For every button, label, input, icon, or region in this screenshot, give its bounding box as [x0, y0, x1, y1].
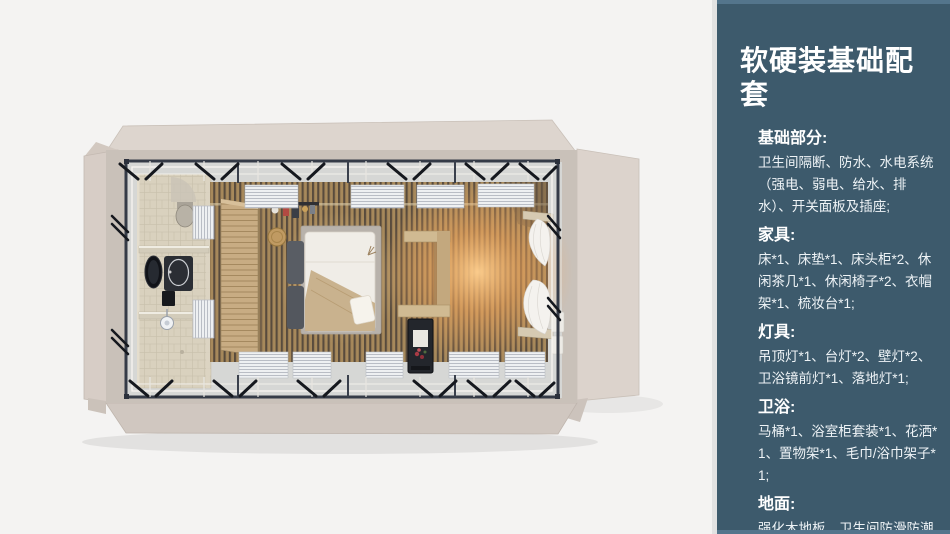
slide-canvas: 软硬装基础配套 基础部分: 卫生间隔断、防水、水电系统（强电、弱电、给水、排水）…	[0, 0, 950, 534]
bathroom-left-wall	[137, 174, 140, 388]
headboard-cushion-1	[287, 241, 304, 284]
floorplan-render	[0, 0, 715, 534]
slat-panel	[293, 352, 331, 378]
flower-3	[417, 348, 421, 352]
tea-table	[268, 228, 286, 246]
slat-panel	[245, 185, 298, 208]
slat-panels-bottom	[239, 352, 545, 378]
flower-2	[420, 355, 424, 359]
toilet	[176, 205, 194, 227]
slat-panel	[239, 352, 288, 378]
partition-1-highlight	[139, 246, 209, 248]
flap-right	[577, 149, 639, 401]
flower-leaf	[424, 351, 427, 354]
faucet	[169, 271, 172, 274]
shelf-unit	[408, 319, 433, 373]
floor-drain	[180, 350, 184, 354]
shelf-post	[437, 231, 450, 317]
door-stack-top	[193, 206, 214, 239]
section-heading: 灯具:	[758, 323, 940, 343]
section-body: 吊顶灯*1、台灯*2、壁灯*2、卫浴镜前灯*1、落地灯*1;	[758, 346, 940, 390]
flower-1	[415, 352, 419, 356]
divider-shadow	[258, 205, 262, 356]
section-heading: 家具:	[758, 226, 940, 246]
shelf-unit-base	[411, 366, 430, 370]
sidebar-top-edge	[717, 0, 950, 4]
section-heading: 基础部分:	[758, 129, 940, 149]
section-body: 马桶*1、浴室柜套装*1、花洒*1、置物架*1、毛巾/浴巾架子*1;	[758, 421, 940, 487]
slat-panel	[351, 185, 404, 208]
spec-section-flooring: 地面: 强化木地板、卫生间防滑防潮石塑板;	[758, 495, 940, 534]
flap-top	[106, 120, 576, 152]
flap-bottom	[106, 403, 577, 434]
shelf-bottom	[398, 305, 450, 317]
slat-panel	[505, 352, 545, 378]
slat-panel	[366, 352, 403, 378]
section-heading: 地面:	[758, 495, 940, 515]
vanity-mirror-glass	[148, 260, 159, 284]
headboard-cushion-2	[287, 286, 304, 329]
door-stack-bottom	[193, 300, 214, 338]
spec-section-lighting: 灯具: 吊顶灯*1、台灯*2、壁灯*2、卫浴镜前灯*1、落地灯*1;	[758, 323, 940, 390]
slat-panel	[417, 185, 464, 208]
spec-section-furniture: 家具: 床*1、床垫*1、床头柜*2、休闲茶几*1、休闲椅子*2、衣帽架*1、梳…	[758, 226, 940, 315]
spec-sections: 基础部分: 卫生间隔断、防水、水电系统（强电、弱电、给水、排水）、开关面板及插座…	[758, 129, 940, 534]
headboard-divider	[221, 199, 262, 356]
slat-panel	[478, 184, 534, 207]
divider-panel	[221, 199, 258, 356]
shower-head-center	[165, 321, 170, 326]
pouf-top	[268, 228, 286, 246]
coat-rack-item-4	[302, 206, 308, 212]
section-body: 卫生间隔断、防水、水电系统（强电、弱电、给水、排水）、开关面板及插座;	[758, 152, 940, 218]
room-top-view	[0, 0, 715, 534]
section-body: 床*1、床垫*1、床头柜*2、休闲茶几*1、休闲椅子*2、衣帽架*1、梳妆台*1…	[758, 249, 940, 315]
spec-section-basics: 基础部分: 卫生间隔断、防水、水电系统（强电、弱电、给水、排水）、开关面板及插座…	[758, 129, 940, 218]
shelf-post-shadow	[434, 242, 437, 305]
bed	[287, 226, 381, 334]
section-heading: 卫浴:	[758, 398, 940, 418]
sidebar-bottom-edge	[717, 530, 950, 534]
slat-panels-top	[245, 184, 534, 208]
shelf-unit-paper	[413, 330, 428, 347]
coat-rack-item-5	[310, 205, 315, 214]
spec-section-bathroom: 卫浴: 马桶*1、浴室柜套装*1、花洒*1、置物架*1、毛巾/浴巾架子*1;	[758, 398, 940, 487]
vanity-stool	[162, 291, 175, 306]
sidebar-title: 软硬装基础配套	[740, 44, 942, 112]
info-sidebar: 软硬装基础配套 基础部分: 卫生间隔断、防水、水电系统（强电、弱电、给水、排水）…	[717, 0, 950, 534]
slat-panel	[449, 352, 499, 378]
